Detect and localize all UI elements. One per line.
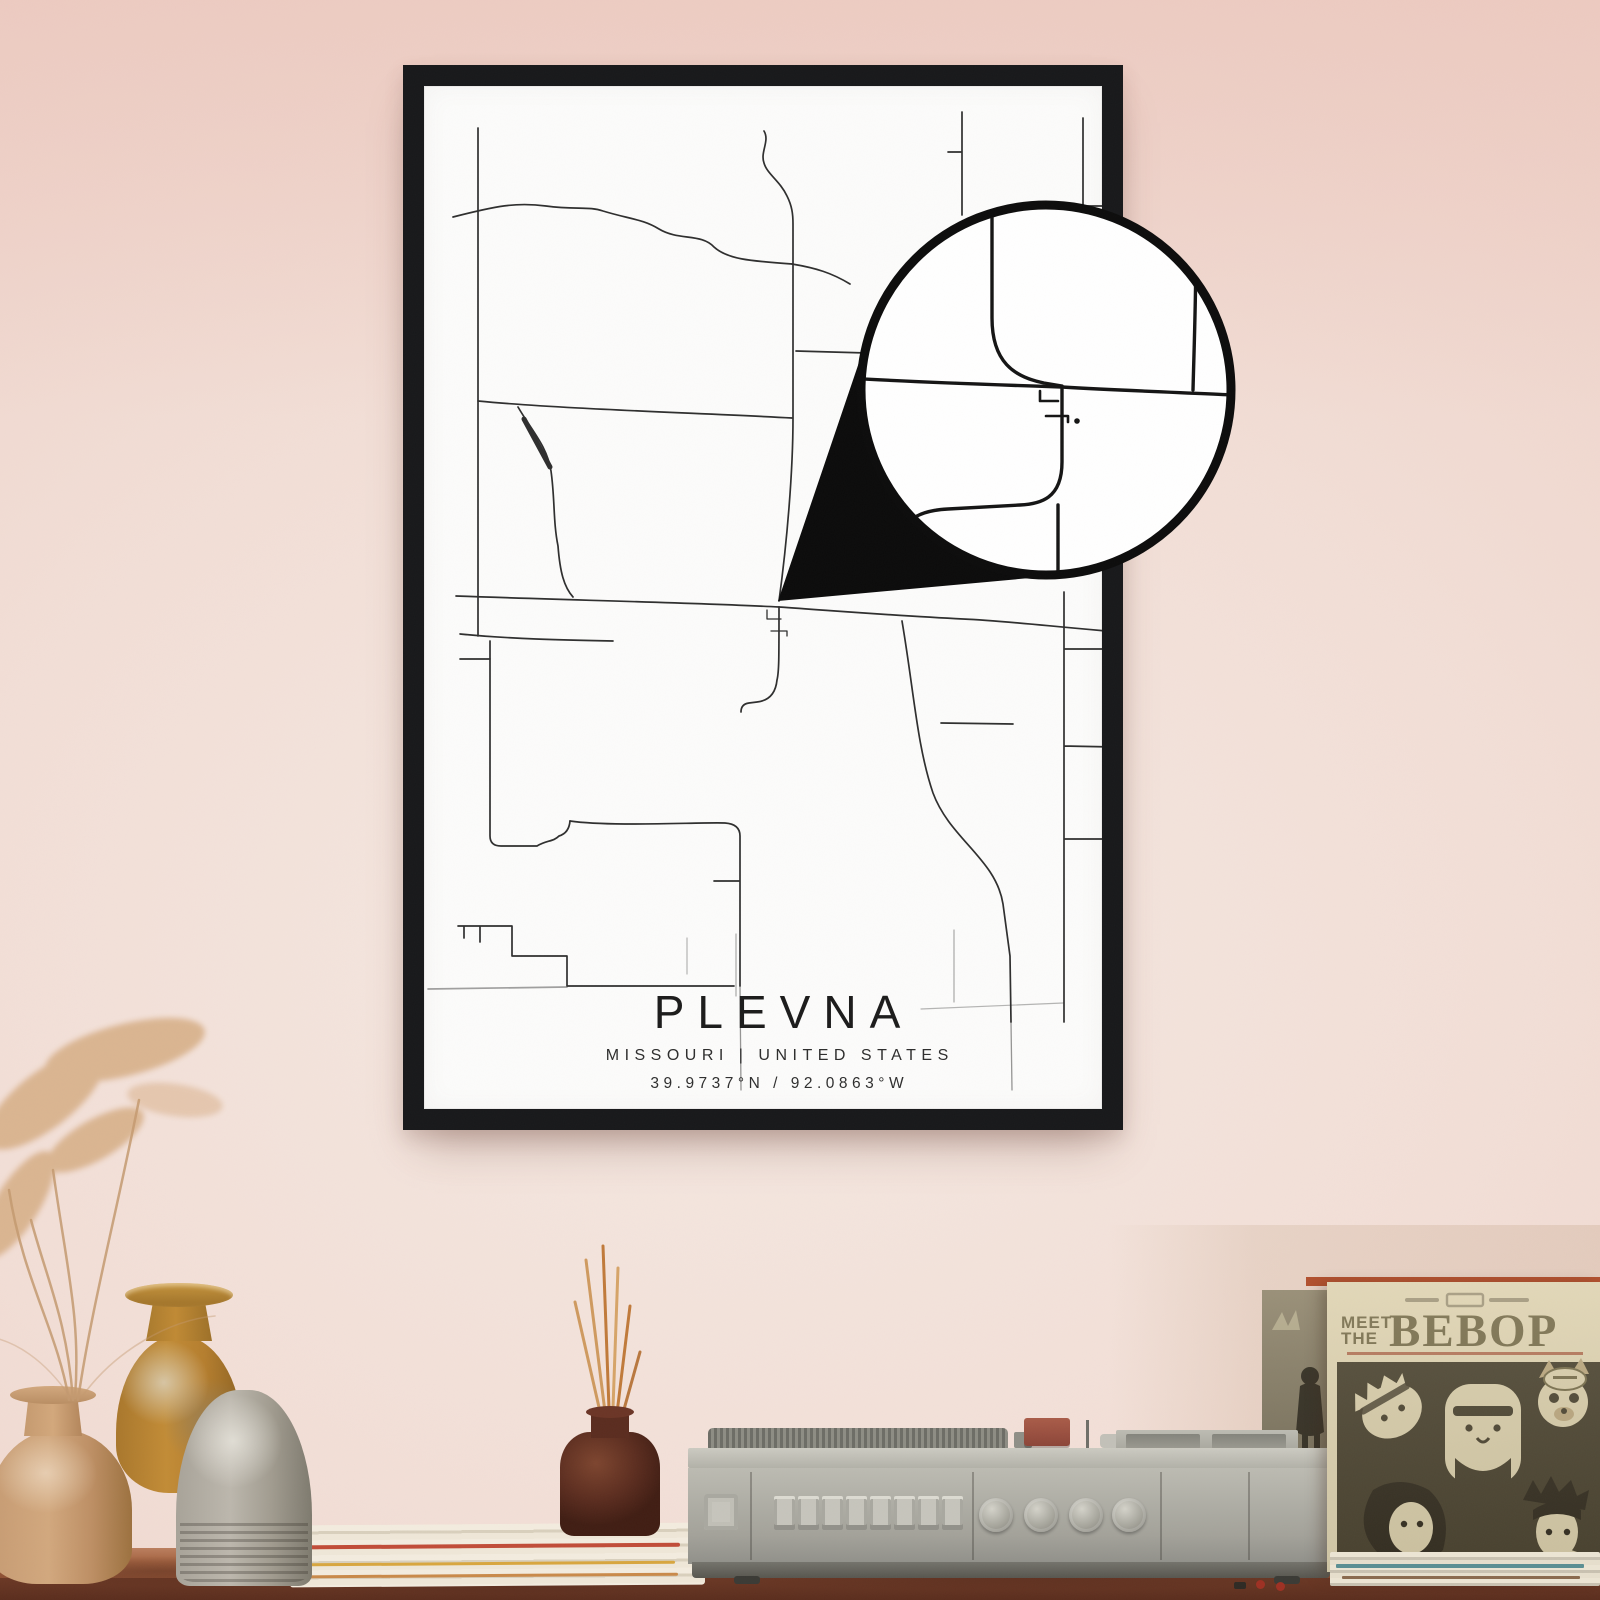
road xyxy=(490,641,570,846)
panel-seam xyxy=(972,1472,974,1560)
compartment-slot xyxy=(1126,1434,1200,1449)
magazine-red-stripe xyxy=(298,1543,680,1550)
poster-frame: PLEVNA MISSOURI | UNITED STATES 39.9737°… xyxy=(403,65,1123,1130)
panel-seam xyxy=(1248,1472,1250,1560)
cartridge-headshell xyxy=(1024,1418,1070,1446)
road xyxy=(941,592,1102,1022)
turntable-base xyxy=(692,1562,1330,1578)
road xyxy=(1083,118,1102,206)
road xyxy=(767,610,787,636)
diffuser-lip xyxy=(586,1406,634,1418)
reed-diffuser-bottle xyxy=(560,1406,660,1538)
road xyxy=(570,821,740,986)
poster-title: PLEVNA xyxy=(606,988,962,1036)
treble-knob xyxy=(1069,1498,1103,1532)
poster-caption: PLEVNA MISSOURI | UNITED STATES 39.9737°… xyxy=(606,988,949,1093)
turntable-front-panel xyxy=(688,1468,1334,1564)
poster-coordinates: 39.9737°N / 92.0863°W xyxy=(606,1075,953,1093)
small-red-cap xyxy=(1256,1580,1265,1589)
panel-seam xyxy=(1160,1472,1162,1560)
gray-vase-ribs xyxy=(180,1518,308,1582)
road xyxy=(453,204,792,264)
street-map xyxy=(424,86,1102,1109)
panel-seam xyxy=(750,1472,752,1560)
road xyxy=(1011,1022,1012,1090)
road xyxy=(458,926,734,986)
compartment-slot xyxy=(1212,1434,1286,1449)
road xyxy=(460,634,613,641)
record-teal-stripe xyxy=(1336,1564,1584,1568)
road xyxy=(478,401,792,418)
volume-knob xyxy=(979,1498,1013,1532)
tan-vase-body xyxy=(0,1430,132,1584)
small-red-cap xyxy=(1276,1582,1285,1591)
grass-stem xyxy=(81,1316,215,1398)
road xyxy=(518,407,573,597)
small-dark-object xyxy=(1234,1582,1246,1589)
road xyxy=(779,607,1102,633)
road xyxy=(796,351,867,353)
record-stack-under-album xyxy=(1330,1552,1600,1586)
road xyxy=(741,607,779,712)
poster-paper: PLEVNA MISSOURI | UNITED STATES 39.9737°… xyxy=(424,86,1102,1109)
road xyxy=(902,621,1011,1022)
album-sepia-overlay xyxy=(1327,1282,1600,1572)
magazine-orange-stripe xyxy=(304,1573,678,1579)
road xyxy=(763,131,793,601)
room-scene: PLEVNA MISSOURI | UNITED STATES 39.9737°… xyxy=(0,0,1600,1600)
power-button xyxy=(704,1494,738,1530)
bebop-album-cover: MEET THE BEBOP xyxy=(1327,1282,1600,1572)
vintage-turntable xyxy=(688,1418,1334,1584)
tuning-knob xyxy=(1112,1498,1146,1532)
bass-knob xyxy=(1024,1498,1058,1532)
turntable-foot xyxy=(734,1576,760,1584)
turntable-deck xyxy=(688,1448,1334,1468)
road-thick xyxy=(524,419,550,467)
magazine-yellow-stripe xyxy=(310,1561,675,1567)
grass-stem xyxy=(53,1170,76,1398)
pampas-grass xyxy=(0,980,305,1420)
road xyxy=(456,596,779,607)
road xyxy=(792,264,850,284)
poster-subtitle: MISSOURI | UNITED STATES xyxy=(606,1047,954,1065)
road xyxy=(948,112,962,215)
lens-road xyxy=(1193,238,1196,390)
road xyxy=(428,987,567,989)
diffuser-body xyxy=(560,1432,660,1536)
record-brown-stripe xyxy=(1342,1576,1580,1579)
